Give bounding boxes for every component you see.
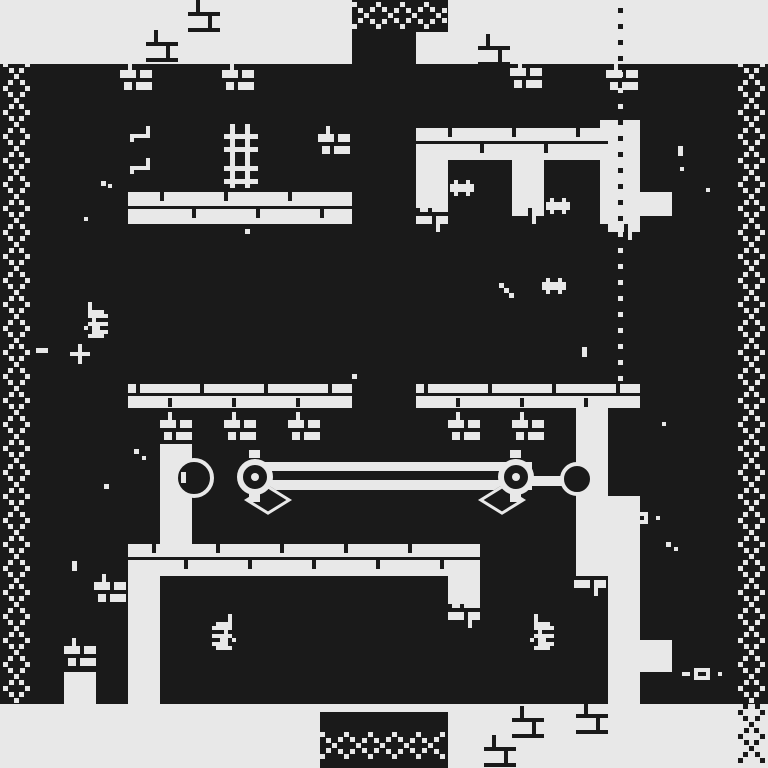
left-edge-chain-link <box>20 332 25 337</box>
right-edge-chain-link <box>754 116 759 121</box>
right-edge-chain-link <box>744 356 749 361</box>
right-edge-chain-link <box>755 656 760 661</box>
right-edge-chain-link <box>738 134 743 139</box>
right-edge-chain-link <box>749 722 754 727</box>
left-edge-chain-link <box>3 326 8 331</box>
left-edge-chain-link <box>14 74 19 79</box>
right-edge-chain-link <box>738 638 743 643</box>
left-edge-chain-link <box>3 470 8 475</box>
left-edge-chain-link <box>3 590 8 595</box>
right-edge-chain-link <box>738 758 743 763</box>
route-dot <box>618 232 623 237</box>
candelabra-sprite <box>212 614 216 618</box>
top-chain-link <box>358 18 363 23</box>
left-edge-chain-link <box>20 188 25 193</box>
bottom-chain-link <box>398 737 403 742</box>
brickf-sprite <box>448 600 452 604</box>
mortar-tick <box>320 209 324 218</box>
left-platform <box>128 384 352 408</box>
right-edge-chain-link <box>754 296 759 301</box>
left-edge-chain-link <box>8 476 13 481</box>
route-dot <box>618 72 623 77</box>
sparkle-speck <box>134 449 139 454</box>
top-chain-link <box>352 24 357 29</box>
bottom-chain-link <box>392 732 397 737</box>
brickf-sprite <box>574 568 578 572</box>
top-chain-link <box>442 8 447 13</box>
right-edge-chain-link <box>743 236 748 241</box>
key-sprite <box>682 668 686 672</box>
ruin-sprite <box>478 34 482 38</box>
right-edge-chain-link <box>743 92 748 97</box>
right-edge-chain-link <box>738 230 743 235</box>
mechanism-rod-groove <box>246 471 532 480</box>
right-edge-chain-link <box>755 140 760 145</box>
sparkle-speck <box>666 542 671 547</box>
right-edge-chain-link <box>738 254 743 259</box>
right-edge-chain-link <box>760 110 765 115</box>
bottom-chain-link <box>368 754 373 759</box>
right-edge-chain-link <box>744 212 749 217</box>
bottom-chain-link <box>338 749 343 754</box>
left-edge-chain-link <box>25 254 30 259</box>
right-edge-chain-link <box>755 608 760 613</box>
bottom-chain-link <box>338 737 343 742</box>
right-edge-chain-link <box>760 758 765 763</box>
left-edge-chain-link <box>20 608 25 613</box>
right-edge-chain-link <box>743 668 748 673</box>
right-edge-chain-link <box>760 398 765 403</box>
key-sprite <box>620 512 624 516</box>
mortar-line <box>128 557 480 560</box>
right-edge-chain-link <box>744 296 749 301</box>
left-edge-chain-link <box>19 692 24 697</box>
left-edge-chain-link <box>8 572 13 577</box>
right-edge-chain-link <box>754 200 759 205</box>
right-edge-chain-link <box>749 218 754 223</box>
pulley-nub <box>249 494 260 502</box>
right-edge-chain-link <box>743 560 748 565</box>
left-edge-chain-link <box>9 536 14 541</box>
right-edge-chain-link <box>760 86 765 91</box>
right-edge-chain-link <box>755 428 760 433</box>
right-edge-chain-link <box>738 542 743 547</box>
left-edge-chain-link <box>9 308 14 313</box>
right-edge-chain-link <box>738 374 743 379</box>
bottom-chain-link <box>374 748 379 753</box>
mortar-tick <box>408 544 412 553</box>
top-chain-link <box>364 13 369 18</box>
left-edge-chain-link <box>8 428 13 433</box>
right-edge-chain-link <box>749 506 754 511</box>
right-edge-chain-link <box>749 242 754 247</box>
left-edge-chain-link <box>19 392 24 397</box>
pulley-axle-dot <box>512 473 520 481</box>
right-edge-chain-link <box>744 392 749 397</box>
ball-glint <box>181 472 186 483</box>
right-edge-chain-link <box>744 680 749 685</box>
left-edge-chain-link <box>20 368 25 373</box>
right-edge-chain-link <box>754 356 759 361</box>
top-chain-link <box>370 7 375 12</box>
left-edge-chain-link <box>8 464 13 469</box>
route-dot <box>618 200 623 205</box>
right-edge-chain-link <box>755 80 760 85</box>
hook-sprite <box>130 158 134 162</box>
right-edge-chain-link <box>755 272 760 277</box>
right-block-a <box>640 192 672 216</box>
left-edge-chain-link <box>14 266 19 271</box>
right-edge-chain-link <box>749 266 754 271</box>
left-edge-chain-link <box>3 302 8 307</box>
bottom-chain-link <box>428 743 433 748</box>
left-edge-chain-link <box>14 242 19 247</box>
right-edge-chain-link <box>754 728 759 733</box>
top-chain-link <box>388 13 393 18</box>
sparkle-speck <box>104 484 109 489</box>
left-edge-chain-link <box>8 620 13 625</box>
left-edge-chain-link <box>3 398 8 403</box>
bottom-chain-link <box>350 737 355 742</box>
left-edge-chain-link <box>25 350 30 355</box>
right-edge-chain-link <box>754 392 759 397</box>
route-dot <box>618 136 623 141</box>
left-edge-chain-link <box>25 542 30 547</box>
right-edge-chain-link <box>744 488 749 493</box>
right-edge-chain-link <box>755 668 760 673</box>
left-edge-chain-link <box>8 368 13 373</box>
right-edge-chain-link <box>754 584 759 589</box>
mortar-tick <box>312 560 316 569</box>
left-edge-chain-link <box>9 488 14 493</box>
bottom-chain-link <box>386 749 391 754</box>
left-edge-chain-link <box>3 158 8 163</box>
right-edge-chain-link <box>755 620 760 625</box>
right-edge-chain-link <box>743 140 748 145</box>
left-edge-chain-link <box>3 86 8 91</box>
right-edge-chain-link <box>743 80 748 85</box>
left-edge-chain-link <box>20 284 25 289</box>
route-dot <box>618 56 623 61</box>
right-edge-chain-link <box>743 716 748 721</box>
right-edge-chain-link <box>760 134 765 139</box>
right-edge-chain-link <box>755 716 760 721</box>
top-chain-link <box>418 7 423 12</box>
left-edge-chain-link <box>14 410 19 415</box>
center-col-stub <box>352 32 416 64</box>
right-edge-chain-link <box>743 524 748 529</box>
left-edge-chain-link <box>20 512 25 517</box>
lattice-hbar <box>224 147 258 152</box>
left-pocket <box>64 672 96 704</box>
left-edge-chain-link <box>25 182 30 187</box>
right-edge-chain-link <box>755 284 760 289</box>
mortar-tick <box>288 192 292 201</box>
right-edge-chain-link <box>744 116 749 121</box>
right-edge-chain-link <box>744 728 749 733</box>
route-dot <box>618 312 623 317</box>
left-edge-chain-link <box>14 554 19 559</box>
right-edge-chain-link <box>738 518 743 523</box>
right-edge-chain-link <box>760 182 765 187</box>
mortar-tick <box>216 544 220 553</box>
left-edge-chain-link <box>9 500 14 505</box>
right-edge-chain-link <box>755 92 760 97</box>
right-edge-chain-link <box>749 170 754 175</box>
creature-sprite <box>450 180 454 184</box>
left-edge-chain-link <box>19 356 24 361</box>
left-edge-chain-link <box>14 290 19 295</box>
left-edge-chain-link <box>20 524 25 529</box>
left-edge-chain-link <box>3 614 8 619</box>
top-chain-link <box>436 13 441 18</box>
bottom-chain-link <box>434 749 439 754</box>
left-edge-chain-link <box>8 176 13 181</box>
right-edge-chain-link <box>743 188 748 193</box>
mortar-tick <box>424 384 428 393</box>
left-edge-chain-link <box>14 218 19 223</box>
left-edge-chain-link <box>14 458 19 463</box>
bottom-chain-link <box>344 732 349 737</box>
left-edge-chain-link <box>19 308 24 313</box>
mechanism-ball <box>174 458 214 498</box>
bottom-chain-link <box>350 749 355 754</box>
right-edge-chain-link <box>755 332 760 337</box>
mortar-line <box>416 141 608 144</box>
right-edge-chain-link <box>760 158 765 163</box>
right-edge-chain-link <box>744 500 749 505</box>
left-edge-chain-link <box>19 536 24 541</box>
right-edge-chain-link <box>754 404 759 409</box>
right-edge-chain-link <box>749 290 754 295</box>
right-edge-chain-link <box>755 224 760 229</box>
left-edge-chain-link <box>8 524 13 529</box>
right-edge-chain-link <box>760 278 765 283</box>
bottom-chain-link <box>326 748 331 753</box>
left-edge-chain-link <box>3 494 8 499</box>
left-edge-chain-link <box>20 572 25 577</box>
bottom-chain-link <box>320 732 325 737</box>
right-edge-chain-link <box>755 416 760 421</box>
left-edge-chain-link <box>25 470 30 475</box>
route-dot <box>618 184 623 189</box>
right-col-2 <box>512 160 544 208</box>
brick-sprite <box>288 412 292 416</box>
left-edge-chain-link <box>9 692 14 697</box>
right-edge-chain-link <box>743 476 748 481</box>
right-edge-chain-link <box>754 500 759 505</box>
left-edge-chain-link <box>3 230 8 235</box>
left-edge-chain-link <box>20 176 25 181</box>
ruin-sprite <box>576 702 580 706</box>
right-edge-chain-link <box>743 428 748 433</box>
left-edge-chain-link <box>8 332 13 337</box>
right-edge-chain-link <box>743 752 748 757</box>
right-edge-chain-link <box>743 464 748 469</box>
top-chain-link <box>376 2 381 7</box>
right-edge-chain-link <box>754 308 759 313</box>
left-edge-chain-link <box>3 542 8 547</box>
right-edge-chain-link <box>755 320 760 325</box>
mortar-line <box>128 206 352 209</box>
right-edge-chain-link <box>744 200 749 205</box>
left-edge-chain-link <box>25 62 30 67</box>
left-edge-chain-link <box>9 344 14 349</box>
ruin-sprite <box>512 706 516 710</box>
left-edge-chain-link <box>20 464 25 469</box>
brick-sprite <box>120 62 124 66</box>
right-edge-chain-link <box>760 686 765 691</box>
right-edge-chain-link <box>743 368 748 373</box>
right-edge-chain-link <box>744 104 749 109</box>
left-edge-chain-link <box>8 416 13 421</box>
left-edge-chain-link <box>19 260 24 265</box>
right-edge-chain-link <box>760 566 765 571</box>
right-edge-chain-link <box>749 602 754 607</box>
left-edge-chain-link <box>3 686 8 691</box>
mortar-tick <box>136 384 140 393</box>
left-edge-chain-link <box>20 380 25 385</box>
bottom-chain-link <box>362 738 367 743</box>
left-edge-chain-link <box>20 620 25 625</box>
left-edge-chain-link <box>19 344 24 349</box>
left-edge-chain-link <box>20 236 25 241</box>
right-block-b <box>640 640 672 672</box>
right-edge-chain-link <box>754 452 759 457</box>
right-edge-chain-link <box>743 224 748 229</box>
right-edge-chain-link <box>743 620 748 625</box>
top-chain-link <box>430 19 435 24</box>
left-edge-chain-link <box>25 302 30 307</box>
left-edge-chain-link <box>9 404 14 409</box>
left-edge-chain-link <box>19 440 24 445</box>
candelabra_m-sprite <box>530 614 534 618</box>
right-edge-chain-link <box>738 494 743 499</box>
top-chain-link <box>424 24 429 29</box>
bottom-chain-link <box>410 738 415 743</box>
right-edge-chain-link <box>754 344 759 349</box>
right-edge-chain-link <box>754 104 759 109</box>
right-edge-chain-link <box>760 494 765 499</box>
right-edge-chain-link <box>744 632 749 637</box>
right-edge-chain-link <box>744 248 749 253</box>
left-edge-chain-link <box>25 110 30 115</box>
mechanism-end-ball <box>560 462 594 496</box>
right-edge-chain-link <box>738 446 743 451</box>
left-edge-chain-link <box>9 116 14 121</box>
right-edge-chain-link <box>738 158 743 163</box>
right-edge-chain-link <box>738 110 743 115</box>
right-edge-chain-link <box>755 128 760 133</box>
right-edge-chain-link <box>754 212 759 217</box>
mortar-tick <box>184 560 188 569</box>
left-edge-chain-link <box>8 80 13 85</box>
left-edge-chain-link <box>14 674 19 679</box>
left-edge-chain-link <box>8 188 13 193</box>
right-edge-chain-link <box>760 302 765 307</box>
left-edge-chain-link <box>19 644 24 649</box>
left-edge-chain-link <box>20 476 25 481</box>
left-edge-chain-link <box>25 158 30 163</box>
creature-sprite <box>542 278 546 282</box>
left-edge-chain-link <box>25 662 30 667</box>
right-edge-chain-link <box>755 524 760 529</box>
mortar-tick <box>160 192 164 201</box>
left-edge-chain-link <box>25 686 30 691</box>
route-dot <box>618 376 623 381</box>
mortar-tick <box>520 398 524 407</box>
candelabra_m-sprite <box>84 302 88 306</box>
route-dot <box>618 248 623 253</box>
right-edge-chain-link <box>755 236 760 241</box>
left-edge-chain-link <box>8 272 13 277</box>
right-edge-chain-link <box>749 410 754 415</box>
right-edge-chain-link <box>744 68 749 73</box>
left-edge-chain-link <box>9 548 14 553</box>
left-edge-chain-link <box>9 440 14 445</box>
left-edge-chain-link <box>14 314 19 319</box>
brick-sprite <box>64 638 68 642</box>
mortar-tick <box>248 560 252 569</box>
mortar-tick <box>552 384 556 393</box>
left-edge-chain-link <box>8 284 13 289</box>
right-edge-chain-link <box>755 560 760 565</box>
left-edge-chain-link <box>8 380 13 385</box>
left-edge-chain-link <box>25 230 30 235</box>
game-viewport[interactable] <box>0 0 768 768</box>
right-edge-chain-link <box>744 344 749 349</box>
left-edge-chain-link <box>8 128 13 133</box>
left-edge-chain-link <box>9 260 14 265</box>
right-edge-chain-link <box>754 740 759 745</box>
right-edge-chain-link <box>749 674 754 679</box>
right-edge-chain-link <box>744 440 749 445</box>
left-edge-chain-link <box>25 422 30 427</box>
bottom-chain-link <box>398 749 403 754</box>
bottom-chain-link <box>344 754 349 759</box>
left-edge-chain-link <box>3 374 8 379</box>
left-edge-chain-link <box>20 656 25 661</box>
left-edge-chain-link <box>25 374 30 379</box>
left-edge-chain-link <box>25 590 30 595</box>
right-edge-chain-link <box>754 644 759 649</box>
left-edge-chain-link <box>14 506 19 511</box>
pulley-nub <box>510 494 521 502</box>
right-edge-chain-link <box>744 644 749 649</box>
route-dot <box>618 168 623 173</box>
mortar-tick <box>264 384 268 393</box>
bottom-chain-link <box>320 754 325 759</box>
left-edge-chain-link <box>19 200 24 205</box>
bottom-chain-link <box>356 743 361 748</box>
sparkle-speck <box>680 167 684 171</box>
left-edge-chain-link <box>9 164 14 169</box>
right-edge-chain-link <box>754 488 759 493</box>
bottom-chain-link <box>416 754 421 759</box>
left-edge-chain-link <box>3 518 8 523</box>
right-edge-chain-link <box>743 572 748 577</box>
brick-sprite <box>606 62 610 66</box>
right-edge-chain-link <box>749 146 754 151</box>
right-edge-chain-link <box>755 188 760 193</box>
ruin-sprite <box>484 735 488 739</box>
left-edge-chain-link <box>3 134 8 139</box>
right-edge-chain-link <box>744 548 749 553</box>
mortar-tick <box>440 560 444 569</box>
right-edge-chain-link <box>743 272 748 277</box>
pulley-nub <box>249 450 260 458</box>
sparkle-speck <box>108 184 112 188</box>
